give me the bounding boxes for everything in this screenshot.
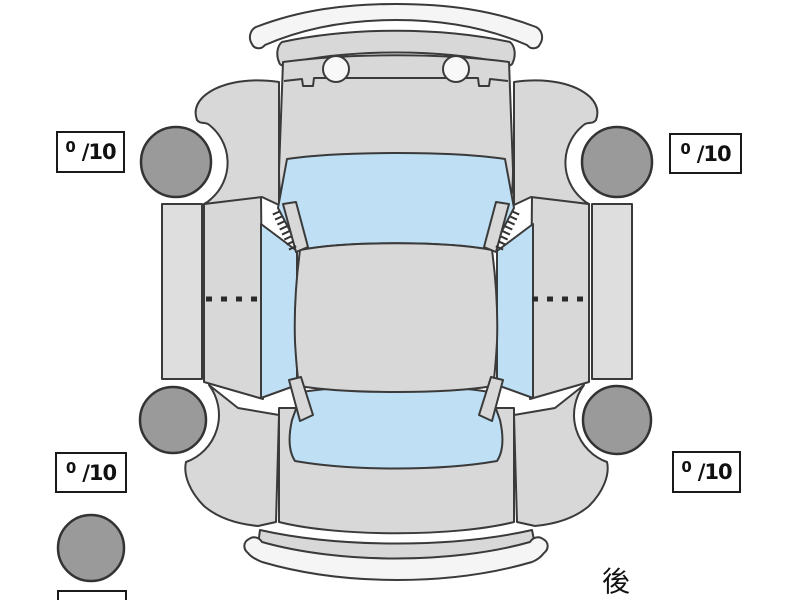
tire-score-box-front-left: 0 /10 xyxy=(56,131,125,173)
rear-window xyxy=(290,386,503,469)
tire-score-max: /10 xyxy=(82,461,116,485)
roof xyxy=(295,243,498,392)
tire-score-box-rear-right: 0 /10 xyxy=(672,451,741,493)
tire-condition-diagram-page: 0 /10 0 /10 0 /10 0 /10 後 xyxy=(0,0,800,600)
tire-score-value: 0 xyxy=(66,459,76,477)
tire-score-max: /10 xyxy=(698,460,732,484)
rear-direction-label: 後 xyxy=(602,568,630,596)
front-left-tire xyxy=(141,127,211,197)
tire-score-box-spare-cutoff xyxy=(57,590,127,600)
tire-score-max: /10 xyxy=(697,142,731,166)
right-rocker-panel xyxy=(592,204,632,379)
tire-score-max: /10 xyxy=(82,140,116,164)
tire-score-value: 0 xyxy=(65,138,75,156)
right-washer-nozzle-circle xyxy=(443,56,469,82)
spare-tire xyxy=(58,515,124,581)
left-rocker-panel xyxy=(162,204,202,379)
front-right-fender xyxy=(514,80,597,205)
left-washer-nozzle-circle xyxy=(323,56,349,82)
car-top-view-diagram xyxy=(0,0,800,600)
rear-right-tire xyxy=(583,386,651,454)
windshield xyxy=(278,153,514,250)
tire-score-box-front-right: 0 /10 xyxy=(669,133,742,174)
rear-left-tire xyxy=(140,387,206,453)
tire-score-value: 0 xyxy=(681,458,691,476)
tire-score-box-rear-left: 0 /10 xyxy=(55,452,127,493)
front-right-tire xyxy=(582,127,652,197)
front-left-fender xyxy=(196,80,279,205)
left-side-window xyxy=(261,224,297,398)
tire-score-value: 0 xyxy=(680,140,690,158)
